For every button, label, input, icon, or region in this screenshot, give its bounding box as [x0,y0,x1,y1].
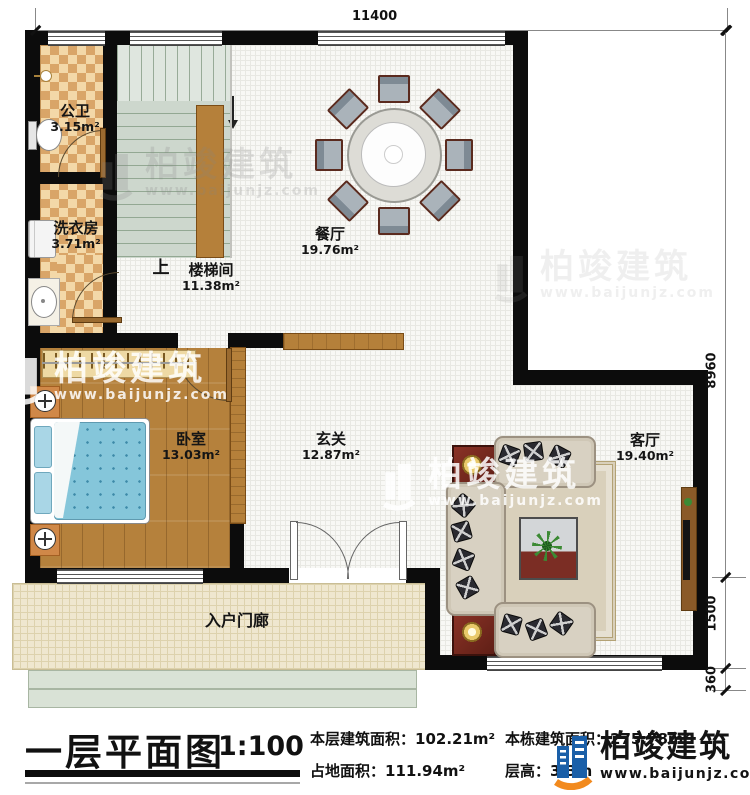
living-area: 19.40m² [616,449,674,463]
room-label-living: 客厅 19.40m² [616,432,674,462]
nightstand-lamp-top-icon [34,390,56,412]
room-label-stair: 楼梯间 11.38m² [182,262,240,292]
stair-area: 11.38m² [182,279,240,293]
dim-right-main: 8960 [705,351,720,391]
tv-plant-icon [684,498,692,506]
brand-logo-icon [550,730,596,790]
bedroom-right-cabinet [230,347,246,524]
living-name: 客厅 [616,432,674,449]
side-table-lamp-bottom-icon [461,621,483,643]
bedroom-door-leaf [226,348,232,402]
bedroom-name: 卧室 [162,431,220,448]
wardrobe-rail [42,362,194,364]
up-text: 上 [153,258,170,278]
laundry-name: 洗衣房 [51,220,100,237]
stair-landing [117,45,230,101]
dim-ext-right-1 [712,577,746,578]
wall-bedroom-right-lower [230,520,244,570]
dim-top-width: 11400 [352,9,397,24]
nightstand-lamp-bottom-icon [34,528,56,550]
wall-lamp-icon [40,70,52,82]
dining-chair [378,207,410,235]
bed-pillow-1 [34,426,52,468]
window-bedroom-bottom [57,569,203,584]
watermark-url: www.baijunjz.com [540,284,715,304]
stair-dining-divider [230,45,232,258]
plan-scale: 1:100 [218,731,304,762]
sofa-pillow [523,441,544,462]
window-stair-top [130,31,222,46]
dim-right-steps: 360 [705,660,720,700]
foyer-sideboard [283,333,404,350]
entry-door-right-leaf[interactable] [399,521,407,580]
stair-up-label: 上 [153,259,170,278]
room-label-bedroom: 卧室 13.03m² [162,431,220,461]
dining-name: 餐厅 [301,226,359,243]
room-label-bathroom: 公卫 3.15m² [50,103,99,133]
foyer-name: 玄关 [302,431,360,448]
wall-living-left [425,568,440,670]
foyer-area: 12.87m² [302,448,360,462]
land-area-line: 占地面积：111.94m² [310,760,465,781]
wardrobe [42,350,196,378]
floor-area-value: 102.21m² [415,730,495,748]
footer-url: www.baijunjz.com [600,766,750,782]
dining-area: 19.76m² [301,243,359,257]
plan-title: 一层平面图 [25,722,225,776]
stair-direction-line [232,96,234,122]
bedroom-area: 13.03m² [162,448,220,462]
bed-pillow-2 [34,472,52,514]
wall-bedroom-top-left [25,333,178,348]
wall-dining-right [513,30,528,385]
stair-railing [196,105,224,258]
stair-name: 楼梯间 [182,262,240,279]
coffee-table-plant-icon [532,531,562,561]
dining-chair [378,75,410,103]
window-dining-top [318,31,505,46]
room-label-laundry: 洗衣房 3.71m² [51,220,100,250]
wall-bedroom-top-right [228,333,283,348]
dim-line-top [35,30,727,31]
window-bathroom-top [48,31,105,46]
bathroom-name: 公卫 [50,103,99,120]
side-table-lamp-top-icon [461,454,483,476]
room-label-dining: 餐厅 19.76m² [301,226,359,256]
dining-table-hub [384,145,403,164]
tv-screen-icon [683,520,690,580]
footer-brand: 柏竣建筑 [600,730,750,766]
wall-step-horizontal [513,370,708,385]
bathroom-area: 3.15m² [50,120,99,134]
porch-step-1 [28,670,417,689]
window-living-bottom [487,656,662,671]
footer-logo: 柏竣建筑 www.baijunjz.com [550,730,750,790]
bathroom-door-leaf [100,128,106,178]
watermark-brand: 柏竣建筑 [540,250,715,284]
porch-step-2 [28,689,417,708]
wall-lamp-stem [34,75,41,77]
floor-area-line: 本层建筑面积：102.21m² [310,728,495,749]
laundry-area: 3.71m² [51,237,100,251]
dining-chair [315,139,343,171]
floorplan-page: { "watermark": { "brand": "柏竣建筑", "url":… [0,0,750,795]
room-label-porch: 入户门廊 [205,612,269,630]
laundry-sink-drain [41,299,45,303]
dim-right-porch: 1500 [705,594,720,634]
land-area-value: 111.94m² [385,762,465,780]
porch-name: 入户门廊 [205,611,269,630]
dining-chair [445,139,473,171]
bed-sheet-fold [54,422,94,518]
title-underline-thick [25,770,300,777]
land-area-label: 占地面积： [310,762,385,780]
title-underline-thin [25,782,300,784]
floor-area-label: 本层建筑面积： [310,730,415,748]
dim-line-right [725,30,726,690]
laundry-door-leaf [72,317,122,323]
height-label: 层高： [505,762,550,780]
room-label-foyer: 玄关 12.87m² [302,431,360,461]
